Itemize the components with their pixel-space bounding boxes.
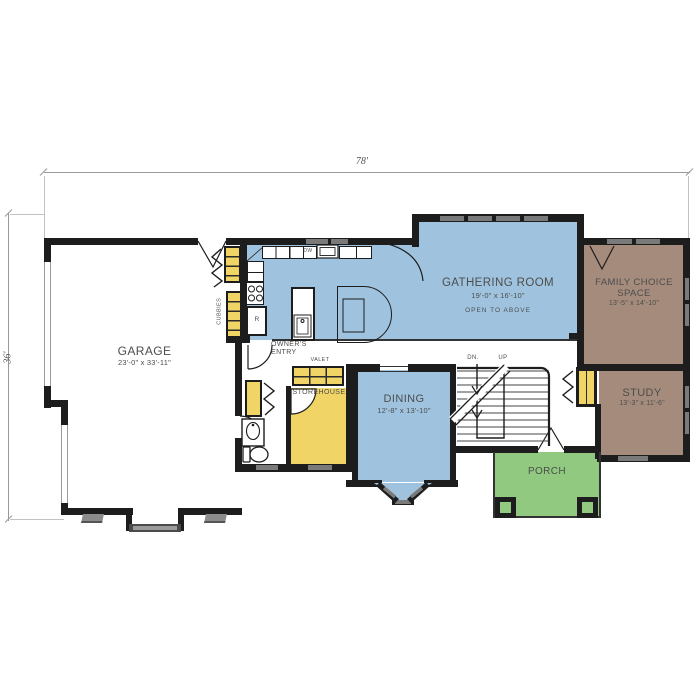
- island-sink-symbol: [294, 315, 311, 337]
- room-name: GATHERING ROOM: [417, 277, 579, 291]
- toilet-symbol: [243, 447, 268, 462]
- sink-symbol: [242, 419, 264, 446]
- valet-label: VALET: [305, 357, 335, 364]
- family-choice-label: FAMILY CHOICE SPACE 13'-5" x 14'-10": [580, 277, 688, 308]
- room-dims: 12'-8" x 13'-10": [357, 406, 451, 415]
- corner-cabinet-line: [247, 247, 263, 261]
- stairs-up-label: UP: [495, 355, 511, 362]
- cubbies-label: CUBBIES: [217, 291, 224, 331]
- staircase: [450, 364, 549, 446]
- study-label: STUDY 13'-3" x 11'-6": [597, 387, 687, 409]
- range-burners: [249, 286, 263, 301]
- refrigerator-label: R: [250, 316, 264, 324]
- room-dims: 13'-3" x 11'-6": [597, 400, 687, 408]
- open-to-above-note: OPEN TO ABOVE: [417, 307, 579, 315]
- room-dims: 13'-5" x 14'-10": [580, 300, 688, 308]
- stairs-down-label: DN.: [464, 355, 482, 362]
- room-name: FAMILY CHOICE SPACE: [580, 277, 688, 300]
- room-name: DINING: [357, 393, 451, 406]
- room-name: STUDY: [597, 387, 687, 400]
- storehouse-label: STOREHOUSE: [290, 389, 348, 397]
- bay-window: [374, 483, 432, 501]
- dining-label: DINING 12'-8" x 13'-10": [357, 393, 451, 415]
- dishwasher-label: DW: [301, 248, 315, 254]
- room-name: GARAGE: [62, 344, 227, 358]
- kitchen-sink-symbol: [317, 245, 338, 258]
- room-dims: 19'-0" x 16'-10": [417, 291, 579, 300]
- room-dims: 23'-0" x 33'-11": [62, 358, 227, 367]
- bifold-door: [212, 249, 573, 415]
- gathering-room-label: GATHERING ROOM 19'-0" x 16'-10": [417, 277, 579, 300]
- owners-entry-label: OWNER'S ENTRY: [271, 341, 317, 357]
- porch-label: PORCH: [495, 466, 599, 478]
- garage-label: GARAGE 23'-0" x 33'-11": [62, 344, 227, 367]
- table-inset: [343, 299, 364, 332]
- floor-plan: 78' 36': [0, 0, 700, 700]
